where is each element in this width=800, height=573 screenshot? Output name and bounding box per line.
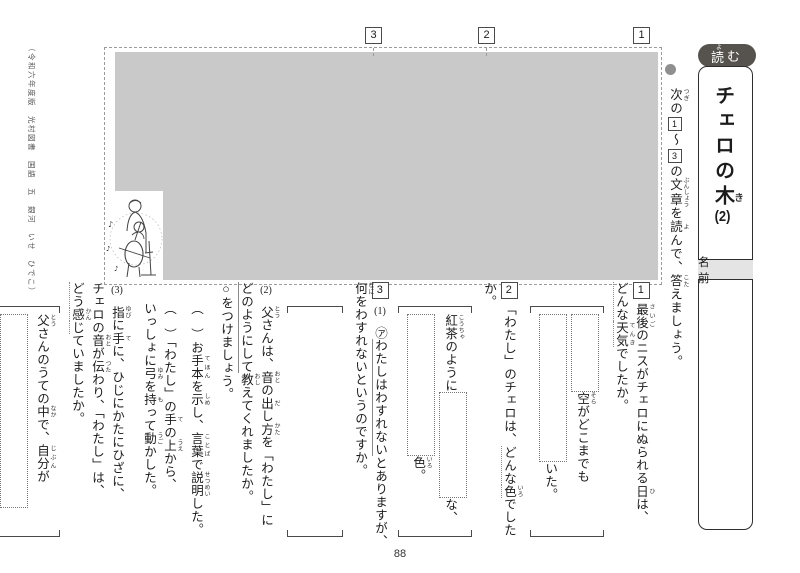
question-2-number: 2: [501, 282, 518, 299]
father-child-cello-illustration: ♪ ♪ ♪: [105, 191, 163, 284]
question-3-sub-3: (3) 指ゆびに手てに、ひじにかたにひざに、チェロの音おとが伝つたわり、「わたし…: [67, 282, 130, 548]
answer-blank-box[interactable]: [439, 392, 467, 498]
question-3-sub-2: (2) 父とうさんは、音おとの出だし方かたを「わたし」にどのようにして教おしえて…: [216, 282, 279, 548]
question-2: 2 「わたし」のチェロは、どんな色いろでしたか。: [479, 282, 522, 548]
question-2-answer-area: 紅茶こうちゃのようにな、色いろ。: [398, 306, 472, 537]
copyright-text: （令和六年度版 光村図書 国語 五 銀河 いせ ひでこ）: [26, 44, 37, 296]
instruction-text: 次つぎの1〜3の文章ぶんしょうを読よんで、答こたえましょう。: [665, 62, 688, 369]
questions-area: 1 最後さいごのニスがチェロにぬられる日ひは、どんな天気てんきでしたか。 空そら…: [0, 282, 654, 548]
passage-box: ♪ ♪ ♪: [104, 47, 662, 285]
name-write-area[interactable]: [699, 280, 752, 529]
sub-question-3-label: (3): [111, 283, 123, 299]
name-label: 名 前: [698, 259, 753, 280]
sub-question-2-text: 父とうさんは、音おとの出だし方かたを「わたし」にどのようにして教おしえてくれまし…: [219, 282, 273, 527]
sub-question-1-label: (1): [374, 304, 386, 320]
question-3-sub-1: 3 (1) ㋐わたしはわすれないとありますが、何なにをわすれないというのですか。: [350, 282, 390, 548]
answer-column: [0, 314, 28, 529]
svg-text:♪: ♪: [114, 265, 118, 273]
read-badge: 読よむ: [698, 44, 756, 67]
passage-marker-2: 2: [478, 27, 495, 44]
question-1: 1 最後さいごのニスがチェロにぬられる日ひは、どんな天気てんきでしたか。: [611, 282, 654, 548]
option-1[interactable]: （ ）お手本てほんを示しめし、言葉ことばで説明せつめいした。: [186, 302, 209, 540]
title-box: チェロの木き(2) 名 前: [698, 66, 753, 530]
answer-column: 色いろ。: [407, 314, 435, 529]
question-3-number: 3: [372, 282, 389, 299]
question-3-sub-1-answer-area[interactable]: [287, 306, 343, 537]
answer-column: いた。: [539, 314, 567, 529]
option-2[interactable]: （ ）「わたし」の手ての上うえから、いっしょに弓ゆみを持もって動うごかした。: [139, 302, 182, 540]
answer-blank-box[interactable]: [407, 314, 435, 456]
passage-text-area: [115, 52, 658, 280]
question-3-sub-3-answer-area: 父とうさんのうての中なかで、自分じぶんがような気きがしていた。: [0, 306, 60, 537]
answer-options: （ ）お手本てほんを示しめし、言葉ことばで説明せつめいした。 （ ）「わたし」の…: [139, 302, 209, 540]
answer-column: 父とうさんのうての中なかで、自分じぶんが: [32, 314, 55, 529]
worksheet-page: （令和六年度版 光村図書 国語 五 銀河 いせ ひでこ） ♪ ♪ ♪: [0, 0, 800, 573]
section-divider-tick: [373, 48, 374, 56]
question-2-text: 「わたし」のチェロは、どんな色いろでしたか。: [482, 282, 516, 537]
answer-blank-box[interactable]: [571, 314, 599, 392]
page-title: チェロの木き(2): [709, 85, 743, 224]
svg-text:♪: ♪: [108, 220, 113, 229]
answer-blank-box[interactable]: [539, 314, 567, 462]
question-1-text: 最後さいごのニスがチェロにぬられる日ひは、どんな天気てんきでしたか。: [613, 282, 648, 524]
question-1-answer-area: 空そらがどこまでもいた。: [530, 306, 604, 537]
sub-question-1-text: ㋐わたしはわすれないとありますが、何なにをわすれないというのですか。: [353, 282, 387, 547]
passage-marker-3: 3: [365, 27, 382, 44]
question-1-number: 1: [633, 282, 650, 299]
answer-column: 紅茶こうちゃのようにな、: [439, 314, 467, 529]
section-divider-tick: [486, 48, 487, 56]
sub-question-2-label: (2): [260, 283, 272, 299]
svg-text:♪: ♪: [106, 245, 110, 253]
page-number: 88: [0, 548, 800, 560]
answer-blank-box[interactable]: [0, 314, 28, 508]
passage-marker-1: 1: [633, 27, 650, 44]
sub-question-3-text: 指ゆびに手てに、ひじにかたにひざに、チェロの音おとが伝つたわり、「わたし」は、ど…: [69, 282, 124, 501]
answer-column: 空そらがどこまでも: [571, 314, 599, 529]
